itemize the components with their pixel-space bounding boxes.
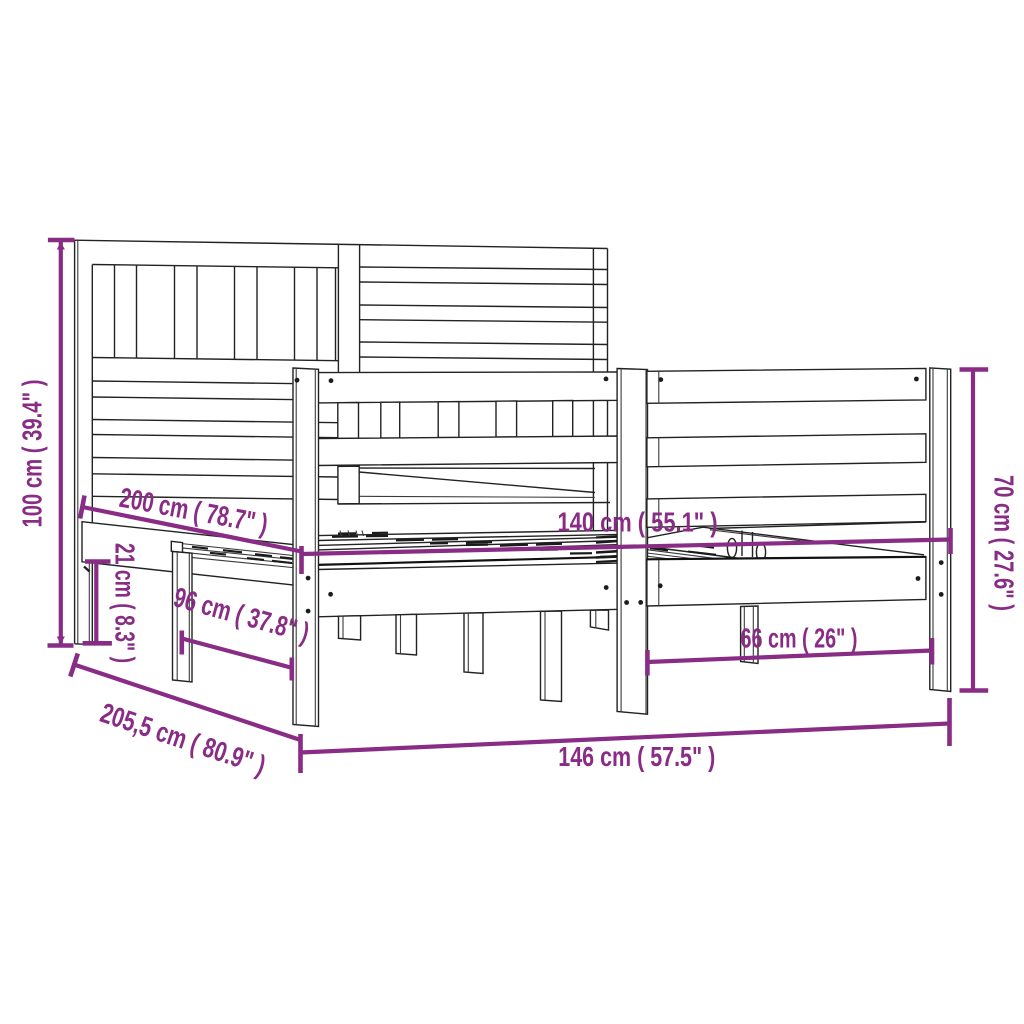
svg-text:70 cm ( 27.6" ): 70 cm ( 27.6" ) <box>989 475 1020 611</box>
svg-text:21 cm ( 8.3" ): 21 cm ( 8.3" ) <box>110 543 141 663</box>
svg-text:100 cm ( 39.4" ): 100 cm ( 39.4" ) <box>17 380 48 528</box>
svg-text:66 cm ( 26" ): 66 cm ( 26" ) <box>741 623 858 654</box>
svg-text:140 cm ( 55.1" ): 140 cm ( 55.1" ) <box>558 507 718 538</box>
svg-text:146 cm ( 57.5" ): 146 cm ( 57.5" ) <box>558 741 715 772</box>
